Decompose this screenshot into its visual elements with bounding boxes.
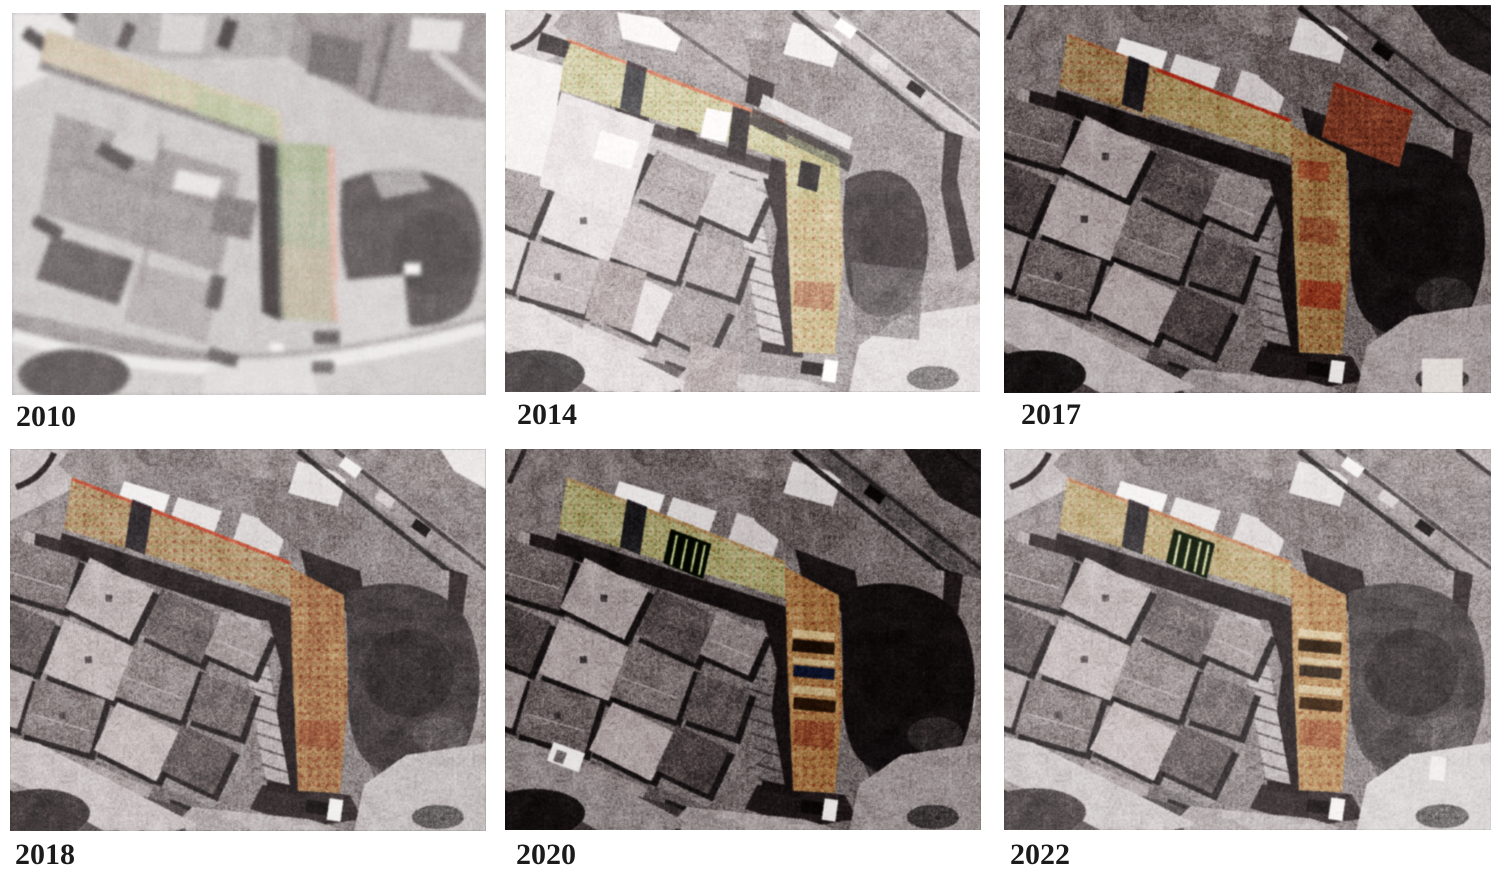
svg-text:2018: 2018 xyxy=(15,838,75,871)
svg-text:2022: 2022 xyxy=(1010,838,1070,871)
svg-text:2020: 2020 xyxy=(516,838,576,871)
svg-text:2017: 2017 xyxy=(1021,398,1081,431)
svg-text:2014: 2014 xyxy=(517,398,577,431)
svg-text:2010: 2010 xyxy=(16,400,76,433)
